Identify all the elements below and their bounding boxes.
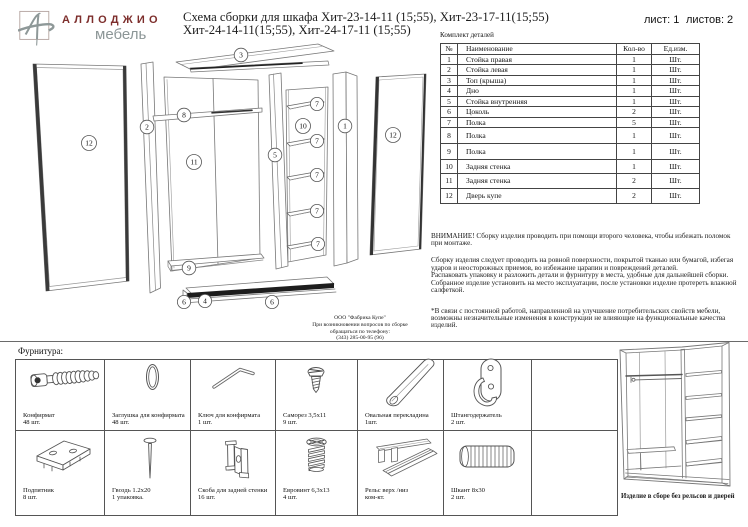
svg-text:10: 10 (299, 122, 307, 131)
svg-text:7: 7 (316, 240, 320, 249)
svg-text:1: 1 (343, 122, 347, 131)
svg-text:12: 12 (85, 139, 93, 148)
svg-text:5: 5 (273, 151, 277, 160)
svg-text:7: 7 (315, 137, 319, 146)
svg-text:11: 11 (190, 158, 197, 167)
svg-text:9: 9 (187, 264, 191, 273)
svg-text:6: 6 (270, 298, 274, 307)
svg-text:7: 7 (315, 171, 319, 180)
svg-text:4: 4 (203, 297, 207, 306)
svg-text:8: 8 (182, 111, 186, 120)
svg-text:7: 7 (315, 100, 319, 109)
svg-text:12: 12 (389, 131, 397, 140)
svg-text:2: 2 (145, 123, 149, 132)
svg-text:6: 6 (182, 298, 186, 307)
svg-text:3: 3 (239, 51, 243, 60)
svg-text:7: 7 (315, 207, 319, 216)
